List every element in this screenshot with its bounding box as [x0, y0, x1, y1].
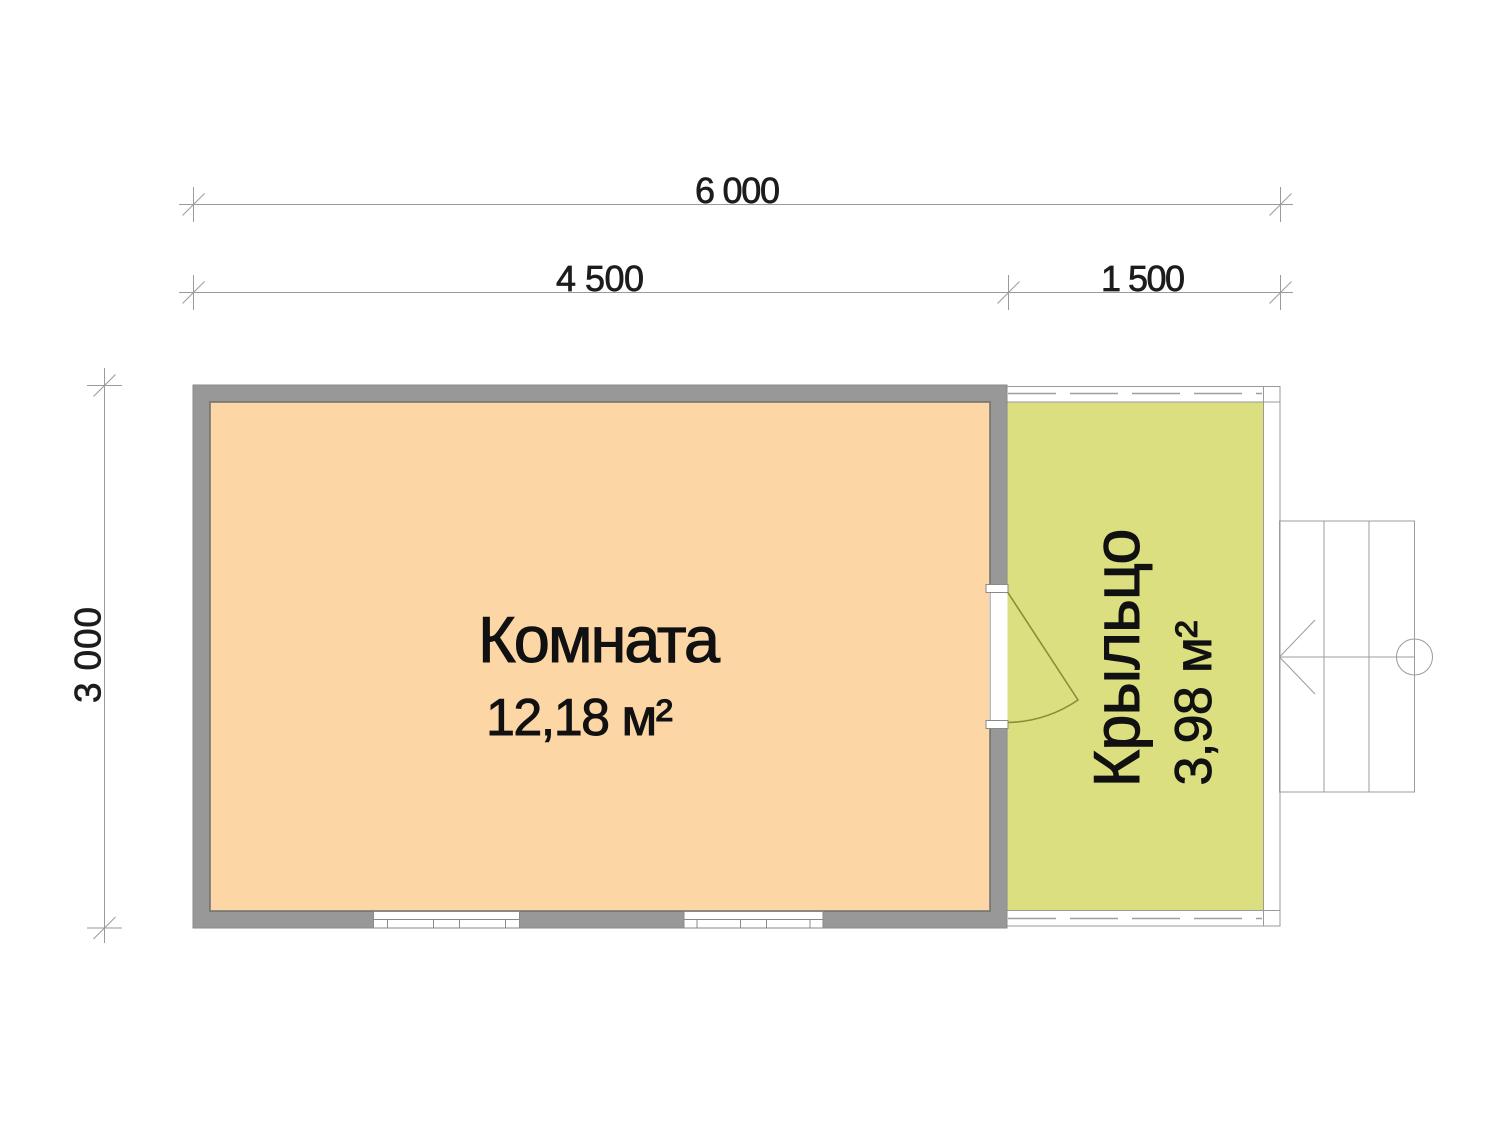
svg-text:12,18 м²: 12,18 м²	[486, 689, 673, 747]
svg-text:4 500: 4 500	[556, 258, 644, 299]
svg-text:Крыльцо: Крыльцо	[1080, 529, 1153, 788]
svg-text:6 000: 6 000	[695, 170, 780, 211]
svg-text:Комната: Комната	[478, 603, 721, 676]
svg-text:1 500: 1 500	[1101, 258, 1185, 299]
svg-text:3,98 м²: 3,98 м²	[1165, 621, 1223, 786]
svg-text:3 000: 3 000	[68, 607, 109, 703]
